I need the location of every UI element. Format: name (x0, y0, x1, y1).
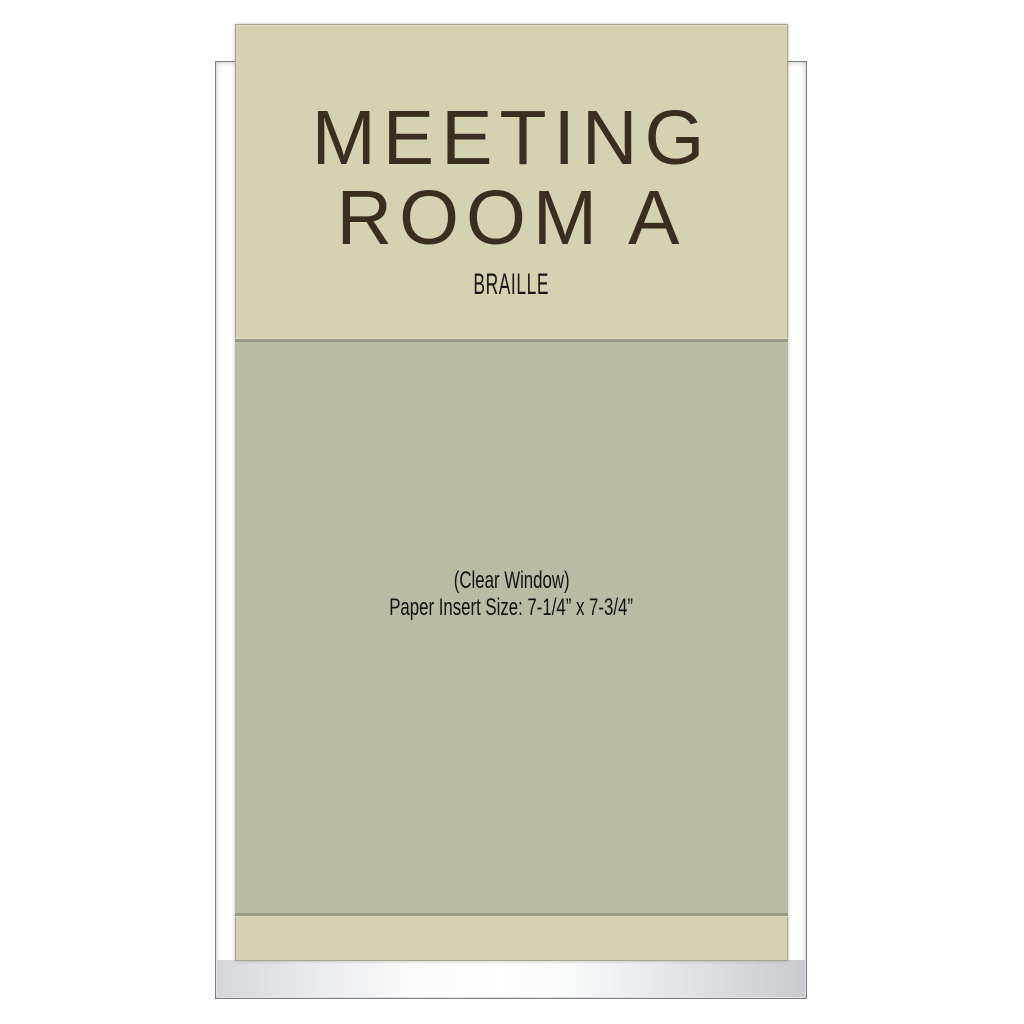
frame-bottom-shine (217, 960, 805, 997)
product-image: MEETING ROOM A BRAILLE (Clear Window) Pa… (0, 0, 1024, 1024)
window-caption-line-2: Paper Insert Size: 7-1/4” x 7-3/4” (235, 594, 788, 621)
sign-title-line-1: MEETING (236, 98, 787, 178)
braille-label: BRAILLE (236, 270, 787, 300)
sign-panel: MEETING ROOM A BRAILLE (Clear Window) Pa… (235, 24, 788, 961)
clear-window: (Clear Window) Paper Insert Size: 7-1/4”… (235, 339, 788, 916)
sign-title-line-2: ROOM A (236, 178, 787, 258)
sign-title: MEETING ROOM A (236, 98, 787, 258)
window-caption: (Clear Window) Paper Insert Size: 7-1/4”… (235, 567, 788, 621)
window-caption-line-1: (Clear Window) (235, 567, 788, 594)
